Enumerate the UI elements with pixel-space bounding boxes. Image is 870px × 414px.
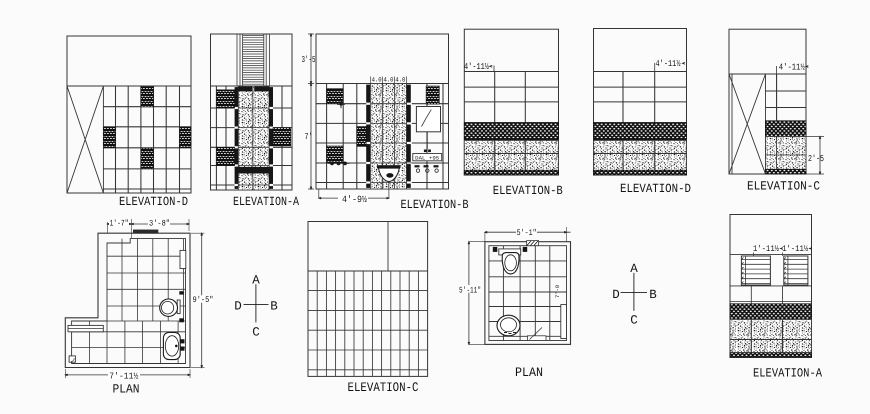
svg-text:ELEVATION-D: ELEVATION-D <box>119 195 188 209</box>
svg-text:4'-11½: 4'-11½ <box>656 59 681 69</box>
svg-text:4.0: 4.0 <box>384 77 394 84</box>
svg-text:ELEVATION-C: ELEVATION-C <box>348 380 419 395</box>
svg-text:3'-8": 3'-8" <box>149 218 170 228</box>
svg-text:9'-5": 9'-5" <box>193 295 214 305</box>
svg-text:7'-11½: 7'-11½ <box>109 371 139 381</box>
svg-text:1'-7": 1'-7" <box>110 218 129 228</box>
svg-text:1'-11½: 1'-11½ <box>753 244 779 254</box>
svg-text:DAL +95: DAL +95 <box>415 156 439 162</box>
svg-text:PLAN: PLAN <box>515 365 543 380</box>
svg-text:PLAN: PLAN <box>113 383 140 397</box>
svg-text:ELEVATION-B: ELEVATION-B <box>493 184 563 198</box>
svg-text:1'-11½: 1'-11½ <box>782 244 808 254</box>
svg-text:B: B <box>649 288 657 302</box>
svg-text:A: A <box>252 273 260 287</box>
svg-text:C: C <box>630 313 638 327</box>
svg-text:D: D <box>234 299 242 313</box>
svg-text:B: B <box>270 299 278 313</box>
svg-text:ELEVATION-B: ELEVATION-B <box>401 198 469 212</box>
svg-text:7': 7' <box>305 132 313 142</box>
svg-text:4.0: 4.0 <box>395 77 405 84</box>
svg-text:5'-11": 5'-11" <box>459 285 481 295</box>
svg-text:2'-5: 2'-5 <box>808 154 824 164</box>
svg-text:ELEVATION-C: ELEVATION-C <box>747 180 820 194</box>
svg-text:4'-9½: 4'-9½ <box>342 194 367 205</box>
svg-text:5'-1": 5'-1" <box>517 228 537 238</box>
svg-text:ELEVATION-D: ELEVATION-D <box>620 182 691 196</box>
svg-text:4'-11½: 4'-11½ <box>464 62 489 72</box>
svg-text:C: C <box>252 326 260 340</box>
svg-text:4.0: 4.0 <box>372 77 382 84</box>
svg-text:3'-5: 3'-5 <box>302 55 316 65</box>
svg-text:D: D <box>612 288 620 302</box>
svg-text:ELEVATION-A: ELEVATION-A <box>233 195 299 209</box>
svg-text:4'-11½: 4'-11½ <box>779 63 805 73</box>
svg-text:ELEVATION-A: ELEVATION-A <box>753 366 822 380</box>
svg-text:A: A <box>630 262 638 276</box>
svg-text:7'-0: 7'-0 <box>554 285 561 298</box>
